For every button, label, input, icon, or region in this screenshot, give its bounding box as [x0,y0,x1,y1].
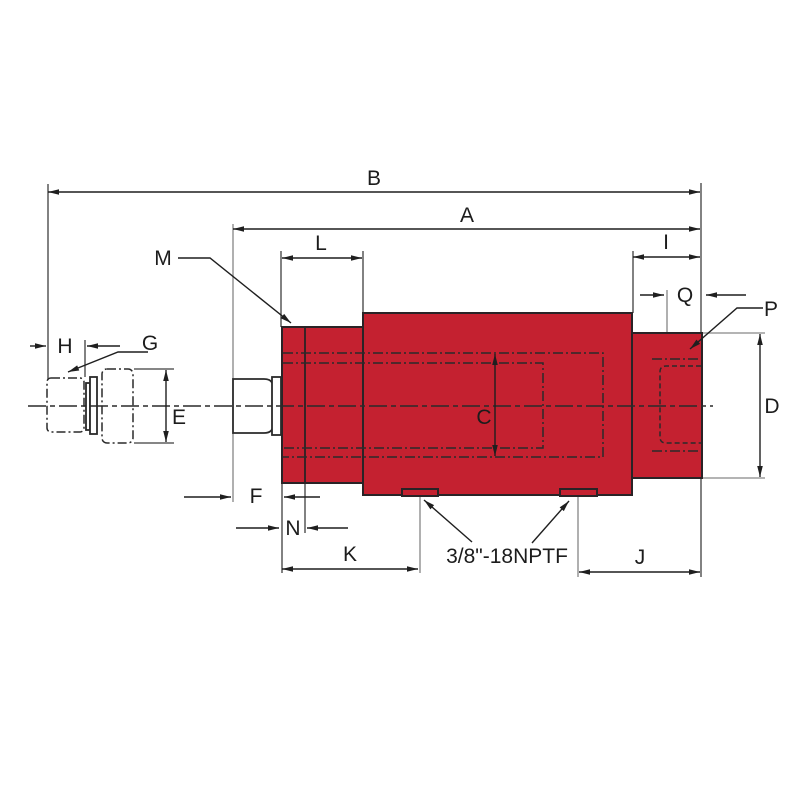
dim-label-Q: Q [677,284,693,307]
dim-label-D: D [764,395,779,418]
dim-label-P: P [764,298,778,321]
dim-label-A: A [460,204,474,227]
dim-label-L: L [315,232,327,255]
dim-label-M: M [154,247,172,270]
leader-port-2 [532,501,569,543]
cylinder-tube [282,327,363,483]
dim-label-G: G [142,332,158,355]
dim-label-K: K [343,543,357,566]
cylinder-body [282,313,702,496]
port-thread-label: 3/8"-18NPTF [446,545,568,568]
cylinder-center-body [363,313,632,495]
leader-M [178,258,291,323]
dim-label-C: C [476,406,491,429]
leader-port-1 [424,500,472,542]
port-2 [560,489,597,496]
dim-label-I: I [663,231,669,254]
dim-label-J: J [635,546,646,569]
dim-label-E: E [172,406,186,429]
technical-drawing-canvas: B A L I Q M G H E F N K C D J P 3/8"-18N… [0,0,800,800]
dim-label-N: N [285,517,300,540]
port-1 [402,489,438,496]
phantom-coupler [47,378,84,432]
dim-label-B: B [367,167,381,190]
dim-label-F: F [250,485,263,508]
drawing-page: B A L I Q M G H E F N K C D J P 3/8"-18N… [0,0,800,800]
dim-label-H: H [57,335,72,358]
